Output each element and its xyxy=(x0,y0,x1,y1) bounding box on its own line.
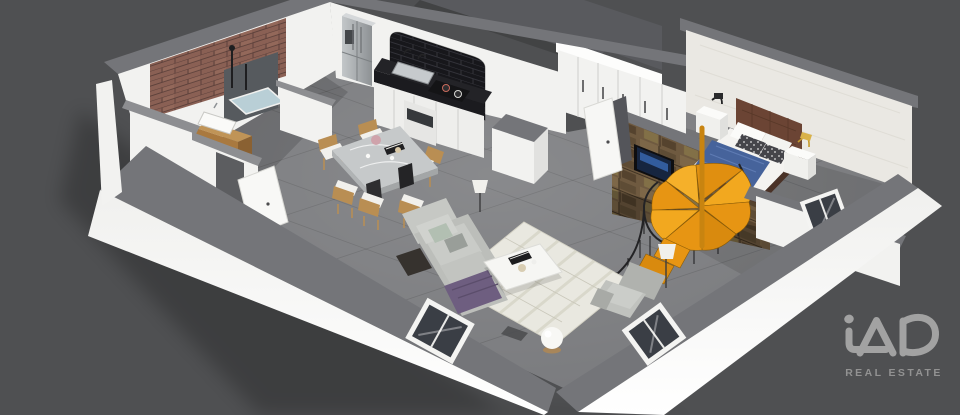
shower-head xyxy=(229,45,235,51)
globe-floor-lamp xyxy=(541,327,563,354)
floorplan-canvas: REAL ESTATE xyxy=(0,0,960,415)
fridge xyxy=(342,13,376,86)
vase xyxy=(395,147,401,153)
pan xyxy=(455,91,462,98)
door-handle xyxy=(266,202,269,205)
logo-tagline: REAL ESTATE xyxy=(845,367,943,379)
cup xyxy=(366,154,370,158)
floorplan-render: REAL ESTATE xyxy=(0,0,960,415)
pan xyxy=(443,85,450,92)
bowl xyxy=(518,264,526,272)
flower-vase xyxy=(371,135,381,145)
door-handle xyxy=(606,140,609,143)
cup xyxy=(390,156,394,160)
candle xyxy=(532,260,537,265)
